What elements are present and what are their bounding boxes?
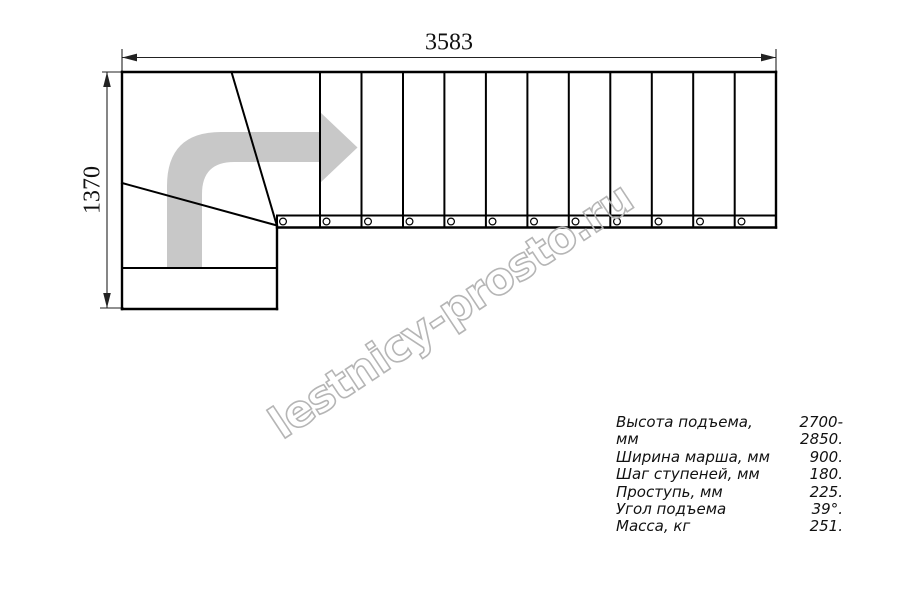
bolt-hole: [406, 218, 413, 225]
spec-table: Высота подъема, мм 2700-2850. Ширина мар…: [616, 414, 843, 536]
spec-label: Ширина марша, мм: [616, 449, 770, 466]
dimension-height-label: 1370: [80, 166, 107, 214]
dim-width-arrow-left: [122, 54, 137, 62]
bolt-hole: [365, 218, 372, 225]
dim-height-arrow-bottom: [103, 293, 111, 308]
spec-row-rise-angle: Угол подъема 39°.: [616, 501, 843, 518]
bolt-hole: [572, 218, 579, 225]
bolt-hole: [489, 218, 496, 225]
bolt-hole: [697, 218, 704, 225]
bolt-hole: [614, 218, 621, 225]
direction-arrow: [167, 112, 358, 268]
spec-value: 225.: [810, 484, 843, 501]
dimension-width-label: 3583: [425, 30, 473, 57]
dim-width-arrow-right: [761, 54, 776, 62]
bolt-hole: [738, 218, 745, 225]
staircase-outline: [122, 72, 776, 309]
bolt-holes: [280, 218, 745, 225]
bolt-hole: [531, 218, 538, 225]
spec-row-flight-width: Ширина марша, мм 900.: [616, 449, 843, 466]
spec-value: 900.: [810, 449, 843, 466]
spec-value: 251.: [810, 518, 843, 535]
tread-lines: [320, 72, 735, 228]
spec-row-step-pitch: Шаг ступеней, мм 180.: [616, 466, 843, 483]
bolt-hole: [448, 218, 455, 225]
spec-label: Шаг ступеней, мм: [616, 466, 760, 483]
bolt-hole: [655, 218, 662, 225]
spec-label: Проступь, мм: [616, 484, 723, 501]
spec-row-mass: Масса, кг 251.: [616, 518, 843, 535]
spec-value: 2700-2850.: [765, 414, 843, 449]
spec-value: 39°.: [812, 501, 843, 518]
bolt-hole: [280, 218, 287, 225]
staircase-drawing-page: 3583 1370 lestnicy-prosto.ru Высота подъ…: [0, 0, 900, 600]
plan-inner-lines: [122, 72, 776, 268]
spec-label: Угол подъема: [616, 501, 726, 518]
spec-label: Масса, кг: [616, 518, 690, 535]
spec-label: Высота подъема, мм: [616, 414, 765, 449]
spec-value: 180.: [810, 466, 843, 483]
spec-row-rise-height: Высота подъема, мм 2700-2850.: [616, 414, 843, 449]
dim-height-arrow-top: [103, 72, 111, 87]
spec-row-tread-depth: Проступь, мм 225.: [616, 484, 843, 501]
bolt-hole: [323, 218, 330, 225]
